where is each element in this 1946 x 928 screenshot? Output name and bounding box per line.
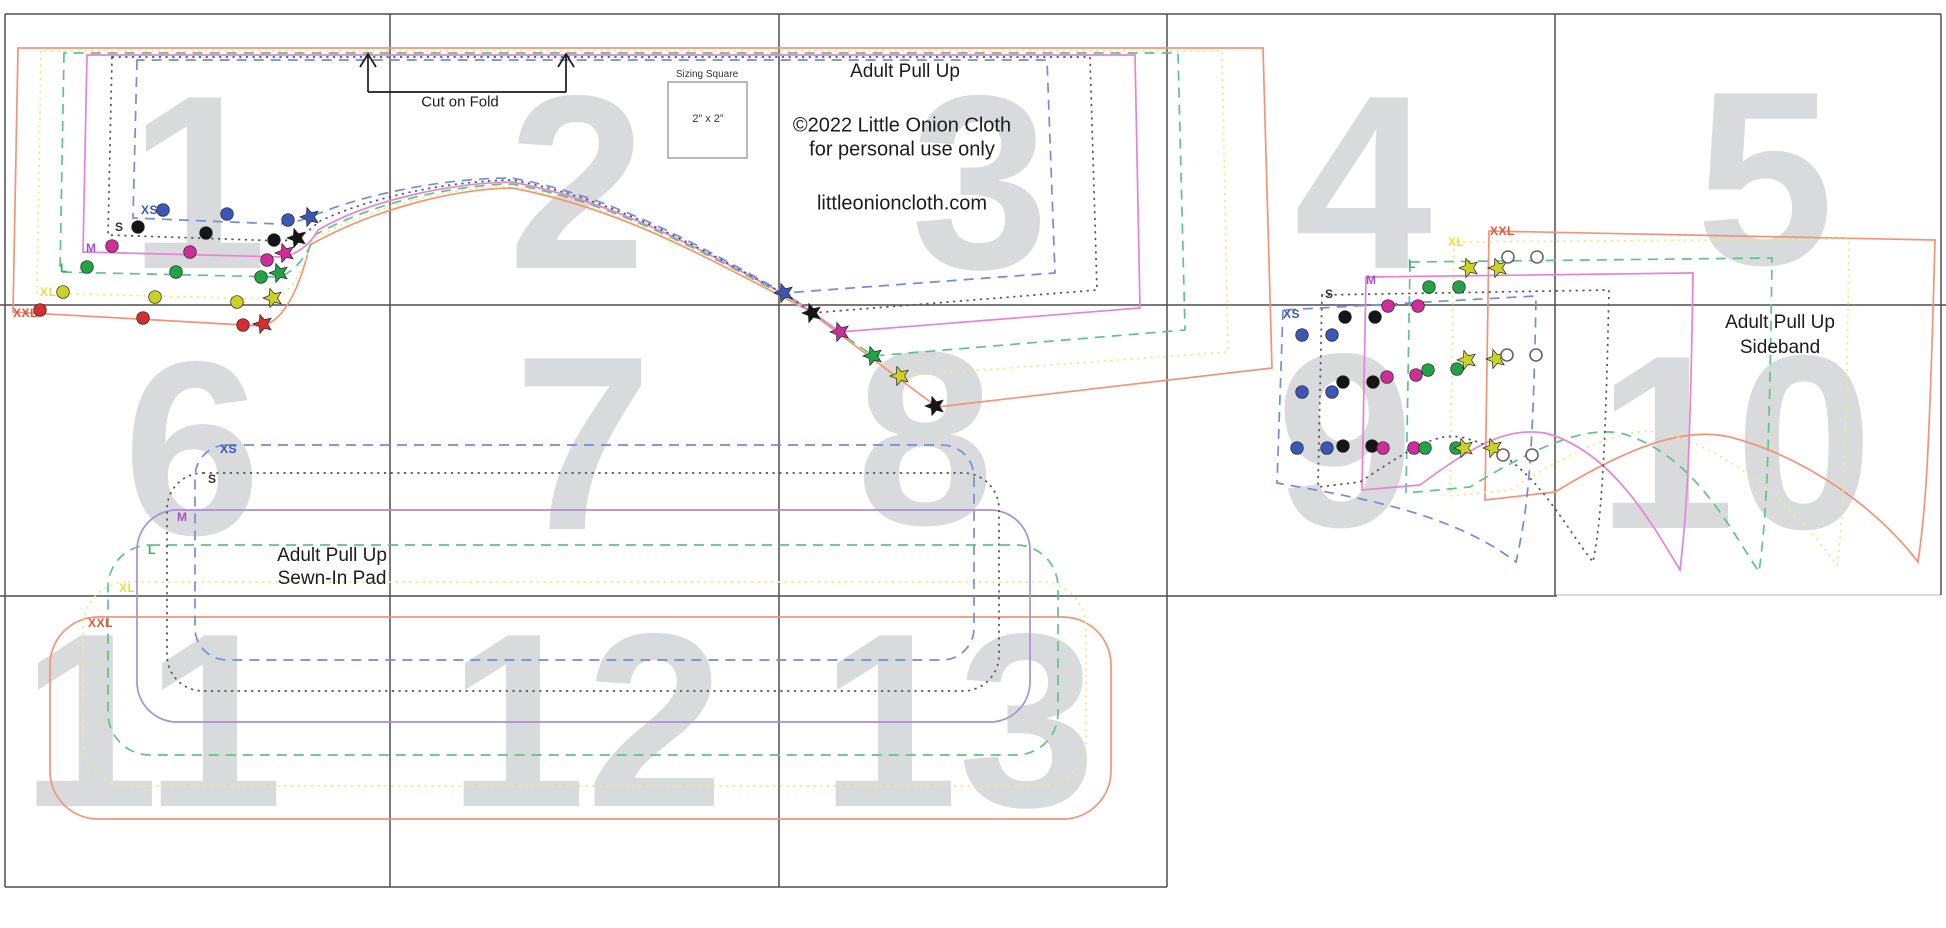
size-label-sideband-s: S [1325, 287, 1334, 301]
page-number: 2 [508, 43, 646, 321]
snap-dot-m [1381, 371, 1394, 384]
size-label-main-m: M [86, 241, 97, 255]
size-label-main-s: S [115, 220, 124, 234]
page-number: 11 [21, 581, 283, 859]
size-label-sideband-l: L [1408, 257, 1416, 271]
snap-dot-m [261, 254, 274, 267]
size-label-pad-xl: XL [119, 581, 135, 595]
pad-label-line1: Adult Pull Up [277, 544, 387, 568]
snap-star-s [287, 229, 305, 248]
snap-star-l [269, 264, 287, 283]
size-label-pad-s: S [208, 472, 217, 486]
snap-dot-xs [1326, 329, 1339, 342]
snap-dot-m [184, 246, 197, 259]
snap-dot-s [1366, 440, 1379, 453]
page-number: 12 [448, 581, 724, 859]
snap-dot-l [81, 261, 94, 274]
snap-dot-s [200, 227, 213, 240]
cut-on-fold-label: Cut on Fold [421, 94, 499, 113]
snap-dot-m [1377, 442, 1390, 455]
snap-dot-xs [1291, 442, 1304, 455]
snap-dot-s [1337, 376, 1350, 389]
page-number: 1 [129, 43, 267, 321]
pattern-title: Adult Pull Up [850, 60, 960, 84]
size-label-sideband-m: M [1366, 273, 1377, 287]
page-number: 13 [820, 581, 1096, 859]
snap-dot-l [170, 266, 183, 279]
copyright-line2: for personal use only [809, 138, 995, 163]
snap-open-circle [1501, 349, 1513, 361]
snap-dot-l [1451, 363, 1464, 376]
page-number: 5 [1696, 39, 1834, 317]
page-number: 3 [911, 43, 1049, 321]
snap-dot-l [1419, 442, 1432, 455]
pad-label-line2: Sewn-In Pad [278, 567, 387, 591]
snap-open-circle [1530, 349, 1542, 361]
size-label-pad-xxl: XXL [88, 616, 113, 630]
size-label-sideband-xxl: XXL [1490, 224, 1515, 238]
snap-dot-xl [231, 296, 244, 309]
page-number: 10 [1597, 303, 1873, 581]
snap-dot-s [1367, 376, 1380, 389]
snap-open-circle [1502, 251, 1514, 263]
size-label-pad-l: L [148, 543, 156, 557]
snap-dot-xs [1296, 329, 1309, 342]
size-label-sideband-xs: XS [1283, 307, 1300, 321]
snap-dot-m [106, 240, 119, 253]
page-number: 7 [514, 304, 652, 582]
website: littleonioncloth.com [817, 192, 987, 217]
size-label-pad-m: M [177, 510, 188, 524]
snap-dot-xl [149, 291, 162, 304]
size-label-pad-xs: XS [220, 442, 237, 456]
snap-dot-s [1337, 440, 1350, 453]
snap-dot-s [1369, 311, 1382, 324]
snap-dot-xxl [237, 319, 250, 332]
snap-dot-s [268, 234, 281, 247]
snap-dot-s [1339, 311, 1352, 324]
snap-dot-xxl [137, 312, 150, 325]
size-label-main-xl: XL [40, 285, 56, 299]
snap-open-circle [1497, 449, 1509, 461]
snap-open-circle [1526, 449, 1538, 461]
snap-dot-xs [221, 208, 234, 221]
copyright-line1: ©2022 Little Onion Cloth [793, 114, 1011, 139]
pattern-sheet: 12345678910111213 [0, 0, 1946, 928]
snap-dot-m [1410, 369, 1423, 382]
snap-star-m [275, 244, 293, 263]
snap-dot-s [132, 221, 145, 234]
snap-dot-xs [1296, 386, 1309, 399]
sideband-label-line2: Sideband [1740, 336, 1820, 360]
snap-open-circle [1531, 251, 1543, 263]
snap-dot-xs [1326, 386, 1339, 399]
snap-dot-xs [157, 204, 170, 217]
snap-dot-m [1382, 300, 1395, 313]
size-label-sideband-xl: XL [1448, 235, 1464, 249]
sideband-label-line1: Adult Pull Up [1725, 311, 1835, 335]
snap-dot-l [1453, 281, 1466, 294]
sizing-square-label: Sizing Square [676, 69, 738, 82]
snap-star-xl [1454, 439, 1472, 458]
snap-dot-xs [282, 214, 295, 227]
size-label-main-l: L [60, 261, 68, 275]
size-label-main-xs: XS [141, 203, 158, 217]
snap-dot-xxl [34, 304, 47, 317]
page-number: 4 [1294, 43, 1432, 321]
snap-dot-xl [57, 286, 70, 299]
snap-dot-m [1412, 300, 1425, 313]
snap-dot-l [255, 271, 268, 284]
snap-dot-l [1423, 281, 1436, 294]
snap-dot-xs [1321, 442, 1334, 455]
sizing-square-dimensions: 2” x 2” [692, 113, 723, 127]
snap-dot-l [1422, 364, 1435, 377]
